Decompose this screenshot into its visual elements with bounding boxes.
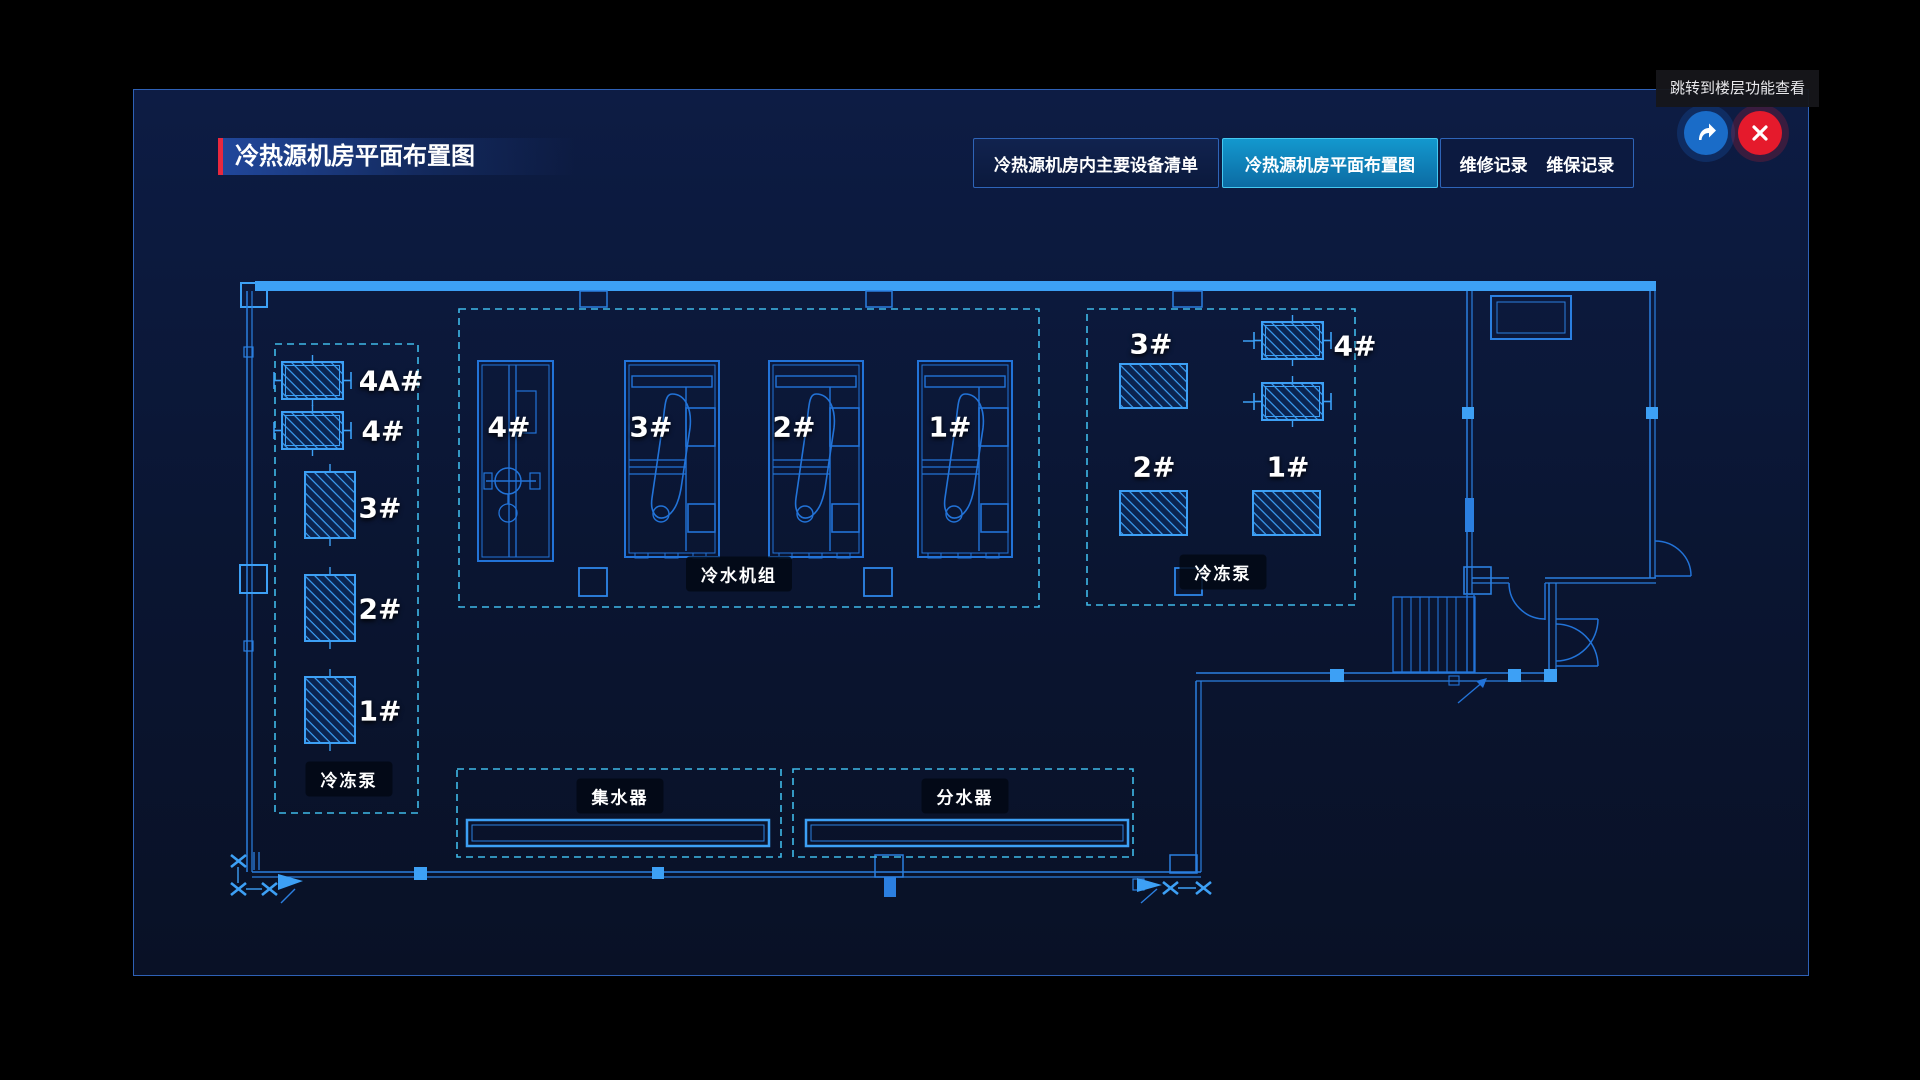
- right-pump-label-1: 1#: [1267, 451, 1310, 484]
- tab-equipment-list-label: 冷热源机房内主要设备清单: [994, 151, 1198, 176]
- tab-records-group: 维修记录 维保记录: [1440, 138, 1634, 188]
- page-title: 冷热源机房平面布置图: [223, 138, 575, 175]
- tab-floor-layout[interactable]: 冷热源机房平面布置图: [1222, 138, 1438, 188]
- top-right-equipment: [1491, 296, 1571, 339]
- distributor-label: 分水器: [922, 779, 1009, 814]
- left-pumps-section-label: 冷冻泵: [306, 762, 393, 797]
- floorplan-drawing: [225, 265, 1705, 915]
- right-pump-label-3: 3#: [1130, 328, 1173, 361]
- chiller-label-2: 2#: [773, 411, 816, 444]
- chiller-symbols: [478, 361, 1012, 561]
- left-pump-label-3: 3#: [359, 492, 402, 525]
- collector-label: 集水器: [577, 779, 664, 814]
- right-pump-label-2: 2#: [1133, 451, 1176, 484]
- close-button[interactable]: [1738, 111, 1782, 155]
- left-pump-symbols: [274, 355, 355, 751]
- chiller-label-4: 4#: [488, 411, 531, 444]
- tab-equipment-list[interactable]: 冷热源机房内主要设备清单: [973, 138, 1219, 188]
- left-pump-label-2: 2#: [359, 593, 402, 626]
- left-pump-label-1: 1#: [359, 695, 402, 728]
- left-pump-label-4: 4#: [362, 415, 405, 448]
- header-pipes: [467, 820, 1128, 846]
- chillers-section-label: 冷水机组: [686, 557, 792, 592]
- right-pump-label-4: 4#: [1334, 330, 1377, 363]
- tab-repair-records[interactable]: 维修记录: [1460, 151, 1528, 176]
- chiller-label-3: 3#: [630, 411, 673, 444]
- tab-floor-layout-label: 冷热源机房平面布置图: [1245, 151, 1415, 176]
- share-arrow-icon: [1694, 121, 1718, 145]
- door-arcs: [1509, 541, 1691, 666]
- share-button[interactable]: [1684, 111, 1728, 155]
- right-pumps-section-label: 冷冻泵: [1180, 555, 1267, 590]
- tooltip: 跳转到楼层功能查看: [1656, 70, 1819, 107]
- chiller-label-1: 1#: [929, 411, 972, 444]
- left-pump-label-4a: 4A#: [359, 365, 424, 398]
- close-x-icon: [1750, 123, 1770, 143]
- stairs: [1393, 595, 1487, 703]
- tab-maintenance-records[interactable]: 维保记录: [1546, 151, 1614, 176]
- screen: 跳转到楼层功能查看 冷热源机房平面布置图 冷热源机房内主要设备清单 冷热源机房平…: [0, 0, 1920, 1080]
- valve-cluster-right: [1133, 855, 1211, 903]
